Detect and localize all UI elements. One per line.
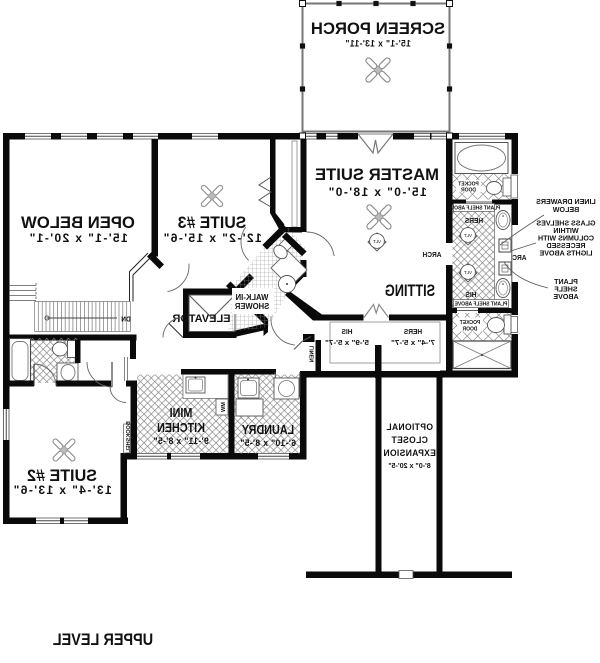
svg-text:5'-9" x 5'-7": 5'-9" x 5'-7" <box>325 338 369 347</box>
svg-text:KITCHEN: KITCHEN <box>157 420 205 435</box>
svg-text:15'-1" x 20'-1": 15'-1" x 20'-1" <box>28 231 127 245</box>
svg-text:LINEN: LINEN <box>310 346 316 363</box>
svg-text:MINI: MINI <box>170 405 193 420</box>
svg-text:HERS: HERS <box>465 218 484 225</box>
svg-text:SCREEN PORCH: SCREEN PORCH <box>311 19 445 38</box>
svg-text:OPTIONAL: OPTIONAL <box>386 422 433 433</box>
svg-text:BELOW: BELOW <box>553 205 580 214</box>
svg-text:HERS: HERS <box>404 329 423 336</box>
svg-text:7'-4" x 5'-7": 7'-4" x 5'-7" <box>391 338 435 347</box>
svg-text:15'-1" x 13'-11": 15'-1" x 13'-11" <box>345 38 411 49</box>
svg-text:BOOKSHELF: BOOKSHELF <box>126 421 132 456</box>
svg-text:POCKET: POCKET <box>459 320 480 326</box>
svg-text:DOOR: DOOR <box>462 326 477 332</box>
svg-text:MASTER SUITE: MASTER SUITE <box>315 165 439 184</box>
svg-text:SUITE #3: SUITE #3 <box>178 214 247 233</box>
svg-text:DOOR: DOOR <box>461 187 476 193</box>
svg-text:15'-0" x 18'-0": 15'-0" x 18'-0" <box>327 185 426 199</box>
svg-text:LAUNDRY: LAUNDRY <box>242 422 294 437</box>
svg-text:OPEN BELOW: OPEN BELOW <box>21 213 135 232</box>
svg-text:13'-4" x 13'-6": 13'-4" x 13'-6" <box>12 483 111 497</box>
svg-text:PLANT SHELF ABOVE: PLANT SHELF ABOVE <box>454 301 507 307</box>
svg-text:ABOVE: ABOVE <box>553 292 578 301</box>
svg-text:PLANT SHELF ABOVE: PLANT SHELF ABOVE <box>447 205 500 211</box>
svg-text:SITTING: SITTING <box>385 281 435 300</box>
svg-text:MW: MW <box>221 402 227 413</box>
svg-text:8'-0" x 20'-5": 8'-0" x 20'-5" <box>388 461 431 470</box>
svg-text:ARCH: ARCH <box>422 252 441 259</box>
svg-text:HIS: HIS <box>341 329 352 336</box>
svg-text:DN: DN <box>121 316 131 323</box>
svg-text:UPPER LEVEL: UPPER LEVEL <box>53 631 154 649</box>
svg-text:LIGHTS ABOVE: LIGHTS ABOVE <box>539 248 592 257</box>
svg-text:EXPANSION: EXPANSION <box>383 448 436 459</box>
svg-text:CLOSET: CLOSET <box>391 435 428 446</box>
svg-text:SHOWER: SHOWER <box>235 302 270 311</box>
svg-text:12'-2" x 15'-6": 12'-2" x 15'-6" <box>162 231 261 245</box>
svg-text:9'-11" x 8'-5": 9'-11" x 8'-5" <box>153 436 209 447</box>
svg-text:VLT: VLT <box>464 270 472 275</box>
svg-text:VLT: VLT <box>373 239 381 244</box>
svg-text:6'-10" x 8'-5": 6'-10" x 8'-5" <box>240 438 296 449</box>
svg-text:HIS: HIS <box>465 292 476 299</box>
svg-text:VLT: VLT <box>464 233 472 238</box>
svg-text:ELEVATOR: ELEVATOR <box>172 313 230 325</box>
